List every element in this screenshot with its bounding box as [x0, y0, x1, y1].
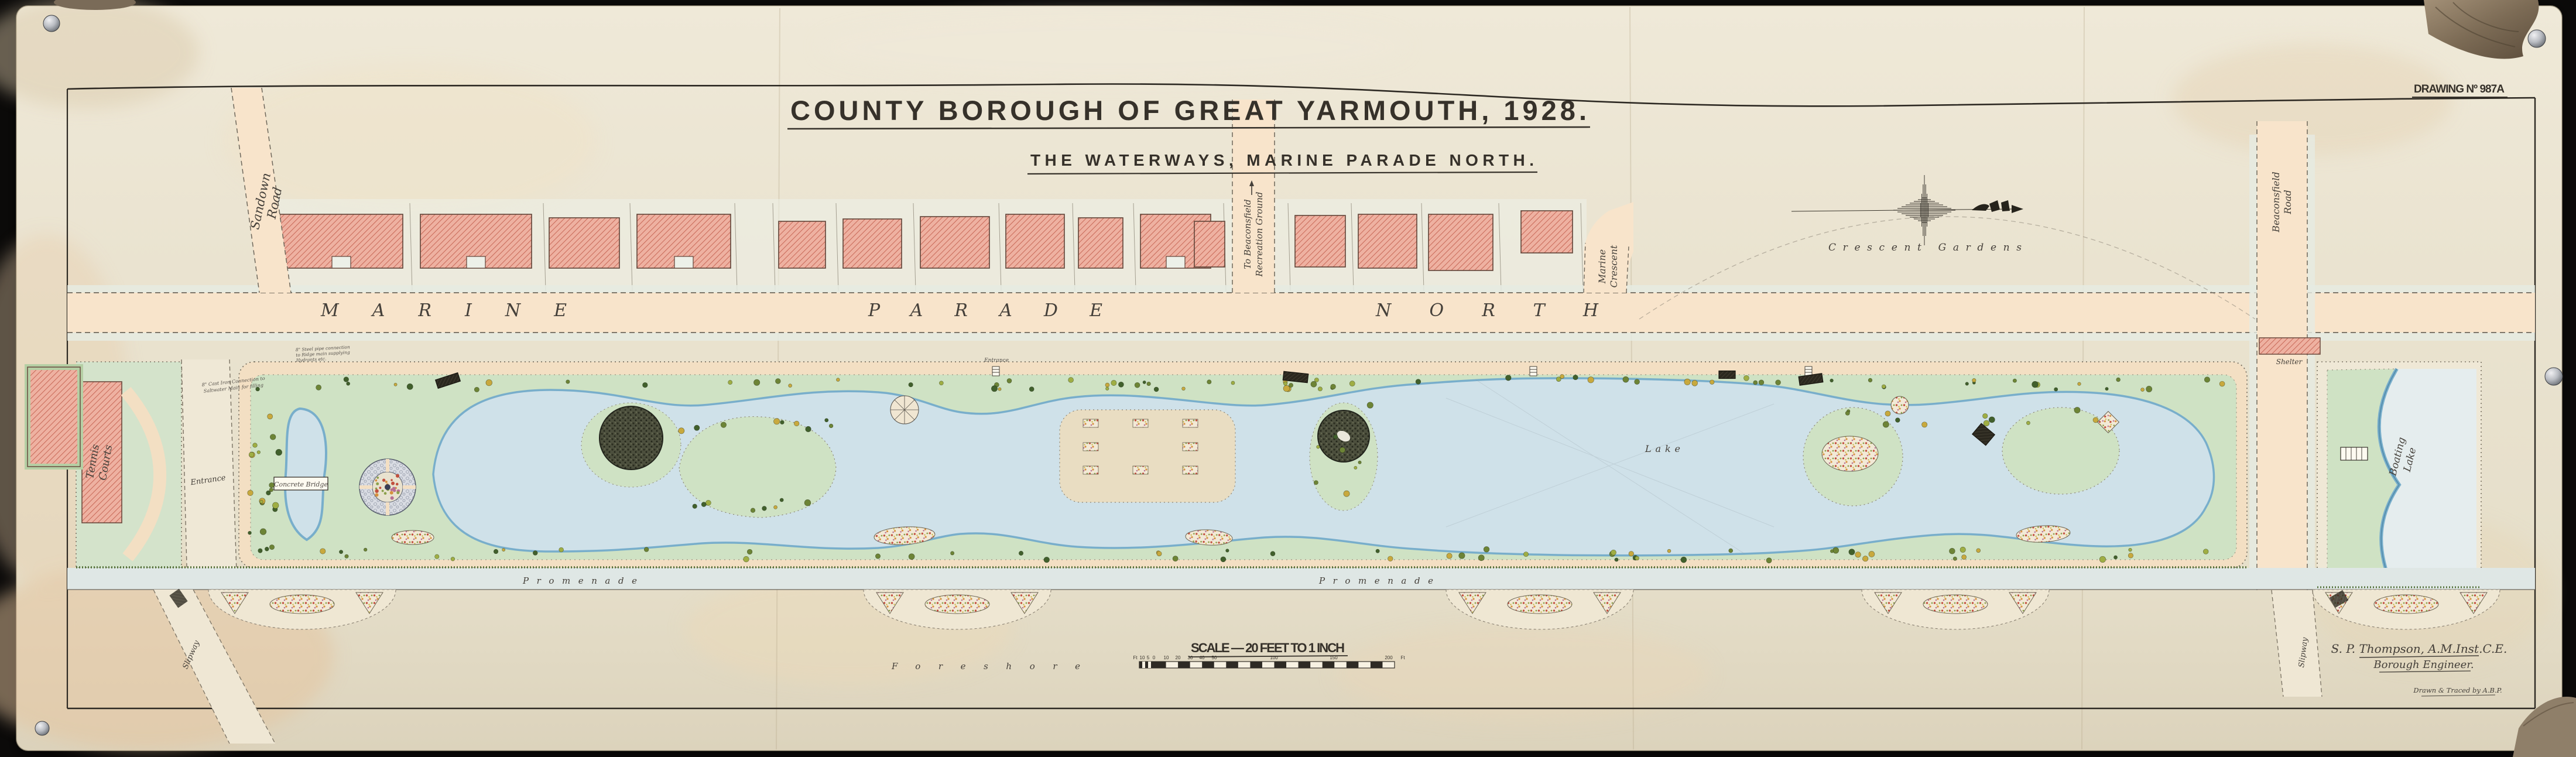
- svg-text:Recreation Ground: Recreation Ground: [1254, 192, 1265, 278]
- scale-tick: 5: [1147, 655, 1150, 660]
- svg-text:Beaconsfield: Beaconsfield: [2270, 172, 2282, 232]
- scale-tick: Ft: [1400, 655, 1405, 660]
- scale-tick: Ft: [1133, 655, 1138, 660]
- shelter-building: [2259, 338, 2320, 354]
- scale-tick: 30: [1188, 655, 1193, 660]
- svg-text:Road: Road: [2282, 190, 2293, 214]
- dark-rockery-west: [600, 406, 663, 470]
- label-promenade-west: Promenade: [522, 576, 637, 586]
- drawing-number: DRAWING Nº 987A: [2414, 83, 2505, 95]
- plan-canvas: Concrete Bridge: [0, 0, 2576, 757]
- footbridge: [2341, 447, 2368, 460]
- label-shelter: Shelter: [2276, 358, 2303, 366]
- marine-parade-road: [67, 285, 2535, 341]
- scanned-plan-photo: Concrete Bridge: [0, 0, 2576, 757]
- concrete-bridge-label: Concrete Bridge: [274, 481, 328, 488]
- concrete-bridge: Concrete Bridge: [274, 477, 328, 490]
- west-pink-block: [28, 367, 80, 467]
- engineer-signature: S. P. Thompson, A.M.Inst.C.E.: [2331, 642, 2508, 656]
- svg-text:To Beaconsfield: To Beaconsfield: [1242, 199, 1253, 269]
- scale-tick: 200: [1385, 655, 1393, 660]
- scale-tick: 40: [1200, 655, 1205, 660]
- scale-tick: 50: [1212, 655, 1217, 660]
- page-subtitle: THE WATERWAYS, MARINE PARADE NORTH.: [1030, 151, 1534, 169]
- label-entrance-small: Entrance: [984, 358, 1009, 364]
- mosaic-rockery: [359, 459, 416, 515]
- scale-tick: 150: [1330, 655, 1338, 660]
- west-pond: [285, 409, 326, 540]
- street-label-marine-crescent: Marine Crescent: [1597, 245, 1619, 287]
- scale-tick: 100: [1270, 655, 1278, 660]
- label-promenade-east: Promenade: [1318, 576, 1433, 586]
- scale-tick: 10: [1164, 655, 1169, 660]
- scale-tick: 10: [1140, 655, 1145, 660]
- scale-tick: 0: [1153, 655, 1156, 660]
- engineer-role: Borough Engineer.: [2373, 659, 2474, 671]
- scale-tick: 20: [1176, 655, 1181, 660]
- page-title: COUNTY BOROUGH OF GREAT YARMOUTH, 1928.: [790, 95, 1587, 126]
- waterways: [285, 378, 2214, 556]
- building-footprints: [280, 211, 1573, 270]
- scale-caption: SCALE — 20 FEET TO 1 INCH: [1191, 640, 1345, 655]
- svg-text:Marine: Marine: [1597, 249, 1608, 284]
- promenade: [67, 567, 2535, 590]
- entrance-road: [181, 359, 237, 590]
- svg-text:Crescent: Crescent: [1608, 245, 1619, 287]
- drawn-traced-by: Drawn & Traced by A.B.P.: [2413, 686, 2502, 694]
